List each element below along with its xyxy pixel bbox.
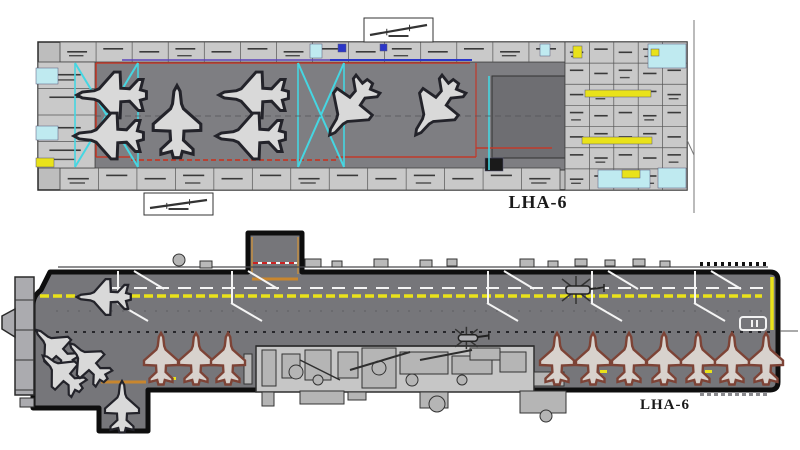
room-text-blob <box>392 48 412 50</box>
island-machinery <box>262 392 274 406</box>
room-text-blob <box>320 48 340 50</box>
room-text-blob <box>222 178 243 180</box>
accent-area <box>310 44 322 58</box>
island-machinery <box>406 374 418 386</box>
accent-area <box>540 44 550 56</box>
room-text-blob <box>285 55 299 56</box>
accent-area <box>485 158 503 171</box>
room-text-blob <box>619 69 632 71</box>
room-text-blob <box>643 133 656 135</box>
hangar-detail-line <box>687 140 694 155</box>
island-machinery <box>520 391 566 413</box>
room-text-blob <box>106 175 127 177</box>
accent-area <box>622 170 640 178</box>
island-machinery <box>244 354 252 384</box>
room-text-blob <box>260 175 281 177</box>
room-text-blob <box>529 178 550 180</box>
room-text-blob <box>500 51 520 53</box>
room-text-blob <box>667 136 680 138</box>
room-text-blob <box>177 55 191 56</box>
room-text-blob <box>619 112 632 114</box>
room-text-blob <box>300 182 315 183</box>
room-text-blob <box>183 175 204 177</box>
bow-stem <box>2 309 15 337</box>
island-machinery <box>173 254 185 266</box>
accent-area <box>36 68 58 84</box>
room-text-blob <box>594 73 607 75</box>
accent-area <box>585 90 651 97</box>
room-text-blob <box>49 96 80 98</box>
deck-edge-fitting <box>420 260 432 267</box>
room-text-blob <box>416 182 431 183</box>
room-text-blob <box>594 115 607 117</box>
room-text-blob <box>531 182 546 183</box>
deck-edge-fitting <box>447 259 457 266</box>
room-text-blob <box>502 55 516 56</box>
room-text-blob <box>570 178 583 180</box>
island-machinery <box>470 348 500 360</box>
room-text-blob <box>414 175 435 177</box>
room-text-blob <box>49 149 80 151</box>
hangar-bay-aft <box>492 76 565 158</box>
room-text-blob <box>491 175 512 177</box>
deck-edge-fitting <box>200 261 212 268</box>
room-text-blob <box>68 178 89 180</box>
room-text-blob <box>570 154 583 156</box>
hangar-deck-plan <box>36 18 694 215</box>
deck-edge-fitting <box>575 259 587 266</box>
room-text-blob <box>594 157 607 159</box>
room-text-blob <box>570 94 583 96</box>
deck-edge-fitting <box>605 260 615 266</box>
room-text-blob <box>175 48 195 50</box>
accent-area <box>582 137 652 144</box>
island-machinery <box>540 410 552 422</box>
room-text-blob <box>67 51 87 53</box>
room-text-blob <box>667 154 680 156</box>
island-machinery <box>262 350 276 386</box>
room-text-blob <box>394 55 408 56</box>
room-text-blob <box>139 51 159 53</box>
island-machinery <box>348 392 366 400</box>
room-text-blob <box>103 48 123 50</box>
room-text-blob <box>619 52 632 54</box>
island-machinery <box>457 375 467 385</box>
room-text-blob <box>69 55 83 56</box>
room-text-blob <box>70 182 85 183</box>
bow-sponson <box>15 277 34 395</box>
deck-yellow-tick <box>705 370 712 373</box>
room-text-blob <box>212 51 232 53</box>
room-text-blob <box>284 51 304 53</box>
accent-area <box>573 46 582 58</box>
room-text-blob <box>464 48 484 50</box>
room-text-blob <box>185 182 200 183</box>
room-text-blob <box>669 98 679 99</box>
deck-edge-fitting <box>374 259 388 267</box>
room-text-blob <box>594 133 607 135</box>
accent-area <box>380 44 387 51</box>
elevator-caption-blob <box>389 35 409 37</box>
deck-edge-fitting <box>548 261 558 267</box>
room-text-blob <box>594 48 607 50</box>
room-text-blob <box>643 115 656 117</box>
room-text-blob <box>375 178 396 180</box>
room-text-blob <box>52 159 75 160</box>
room-text-blob <box>356 51 376 53</box>
deck-edge-fitting <box>305 259 321 267</box>
room-text-blob <box>145 178 166 180</box>
room-text-blob <box>571 119 581 120</box>
hangar-deck-label: LHA-6 <box>492 192 584 213</box>
deck-edge-fitting <box>633 259 645 266</box>
accent-area <box>36 158 54 167</box>
room-text-blob <box>669 161 679 162</box>
helicopter-body <box>458 335 477 341</box>
island-machinery <box>313 375 323 385</box>
island-machinery <box>500 352 526 372</box>
deck-edge-fitting <box>332 261 342 267</box>
room-text-blob <box>570 69 583 71</box>
room-text-blob <box>596 98 606 99</box>
room-text-blob <box>643 157 656 159</box>
bow-sponson <box>20 398 34 407</box>
room-text-blob <box>428 51 448 53</box>
room-text-blob <box>571 183 581 184</box>
room-text-blob <box>452 178 473 180</box>
deck-edge-fitting <box>520 259 534 267</box>
deck-plan-svg <box>0 0 800 450</box>
room-text-blob <box>570 136 583 138</box>
room-text-blob <box>596 161 606 162</box>
room-text-blob <box>667 112 680 114</box>
room-text-blob <box>620 77 630 78</box>
room-text-blob <box>667 69 680 71</box>
room-text-blob <box>248 48 268 50</box>
room-text-blob <box>667 94 680 96</box>
deck-edge-fitting <box>660 261 670 267</box>
room-text-blob <box>644 119 654 120</box>
room-text-blob <box>570 112 583 114</box>
flight-deck-label: LHA-6 <box>622 397 708 414</box>
room-text-blob <box>643 73 656 75</box>
room-text-blob <box>298 178 319 180</box>
accent-area <box>36 126 58 140</box>
elevator-caption-blob <box>169 208 189 210</box>
room-text-blob <box>337 175 358 177</box>
island-machinery <box>338 352 358 378</box>
accent-area <box>651 49 659 56</box>
accent-area <box>338 44 346 52</box>
island-machinery <box>429 396 445 412</box>
accent-area <box>658 168 686 188</box>
island-machinery <box>300 391 344 404</box>
room-text-blob <box>619 154 632 156</box>
deck-yellow-tick <box>600 370 607 373</box>
helicopter-body <box>566 286 590 294</box>
lha6-deck-plans: LHA-6 LHA-6 <box>0 0 800 450</box>
island-machinery <box>289 365 303 379</box>
